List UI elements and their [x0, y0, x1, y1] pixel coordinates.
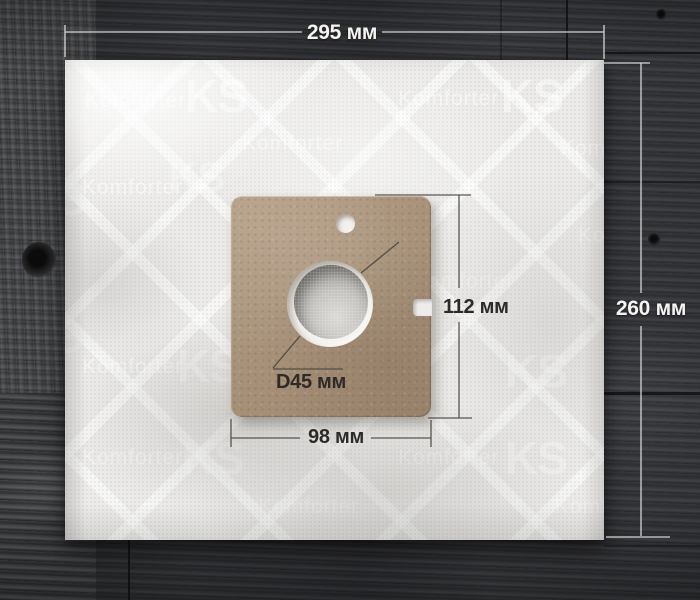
wood-knot — [656, 9, 667, 20]
plank-joint — [604, 545, 700, 547]
plank-joint — [566, 0, 568, 60]
dust-bag: KomforterKSKomforterKSKomforterKSKomfort… — [65, 60, 604, 540]
suction-hole — [294, 265, 368, 339]
label-outer-height: 260 мм — [611, 297, 691, 321]
label-plate-height: 112 мм — [443, 296, 509, 319]
wood-knot — [648, 233, 661, 246]
wood-knot — [22, 242, 56, 278]
plank-joint — [604, 181, 700, 183]
label-outer-width: 295 мм — [303, 21, 381, 45]
label-plate-width: 98 мм — [298, 426, 374, 449]
plank-joint — [604, 52, 700, 54]
product-photo-scene: KomforterKSKomforterKSKomforterKSKomfort… — [0, 0, 700, 600]
plate-edge-notch — [413, 299, 432, 316]
plank-joint — [128, 540, 130, 600]
plank-joint — [604, 392, 700, 395]
label-hole-diameter: D45 мм — [276, 371, 346, 394]
plank-joint — [500, 0, 502, 60]
small-mounting-hole — [336, 214, 355, 233]
